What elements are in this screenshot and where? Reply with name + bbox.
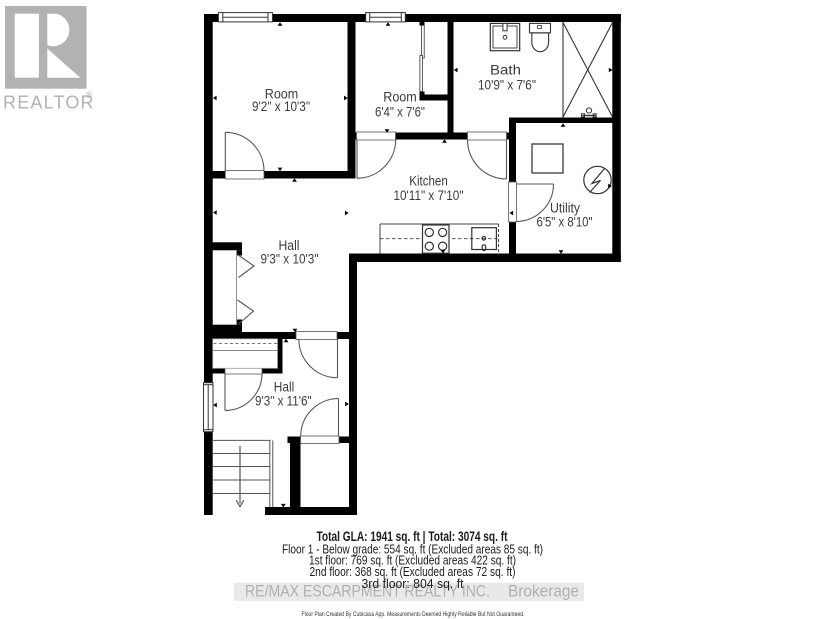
svg-text:Floor Plan Created By Cubicasa: Floor Plan Created By Cubicasa App. Meas…	[302, 611, 525, 618]
svg-text:6'4" x 7'6": 6'4" x 7'6"	[375, 104, 425, 119]
svg-text:Brokerage: Brokerage	[508, 583, 579, 601]
svg-text:10'9" x 7'6": 10'9" x 7'6"	[478, 78, 536, 93]
svg-text:®: ®	[86, 90, 93, 100]
svg-text:Kitchen: Kitchen	[409, 174, 448, 189]
svg-text:Room: Room	[383, 89, 417, 104]
svg-text:9'3" x 11'6": 9'3" x 11'6"	[255, 394, 312, 409]
svg-text:Hall: Hall	[274, 380, 295, 395]
svg-text:Bath: Bath	[490, 63, 521, 78]
svg-text:9'2" x 10'3": 9'2" x 10'3"	[252, 99, 310, 114]
svg-text:Utility: Utility	[550, 201, 580, 216]
svg-text:6'5" x 8'10": 6'5" x 8'10"	[537, 215, 593, 230]
svg-text:REALTOR: REALTOR	[3, 93, 95, 113]
svg-text:9'3" x 10'3": 9'3" x 10'3"	[261, 252, 319, 267]
svg-text:3rd floor: 804 sq. ft: 3rd floor: 804 sq. ft	[362, 577, 464, 591]
svg-text:10'11" x 7'10": 10'11" x 7'10"	[394, 188, 464, 203]
